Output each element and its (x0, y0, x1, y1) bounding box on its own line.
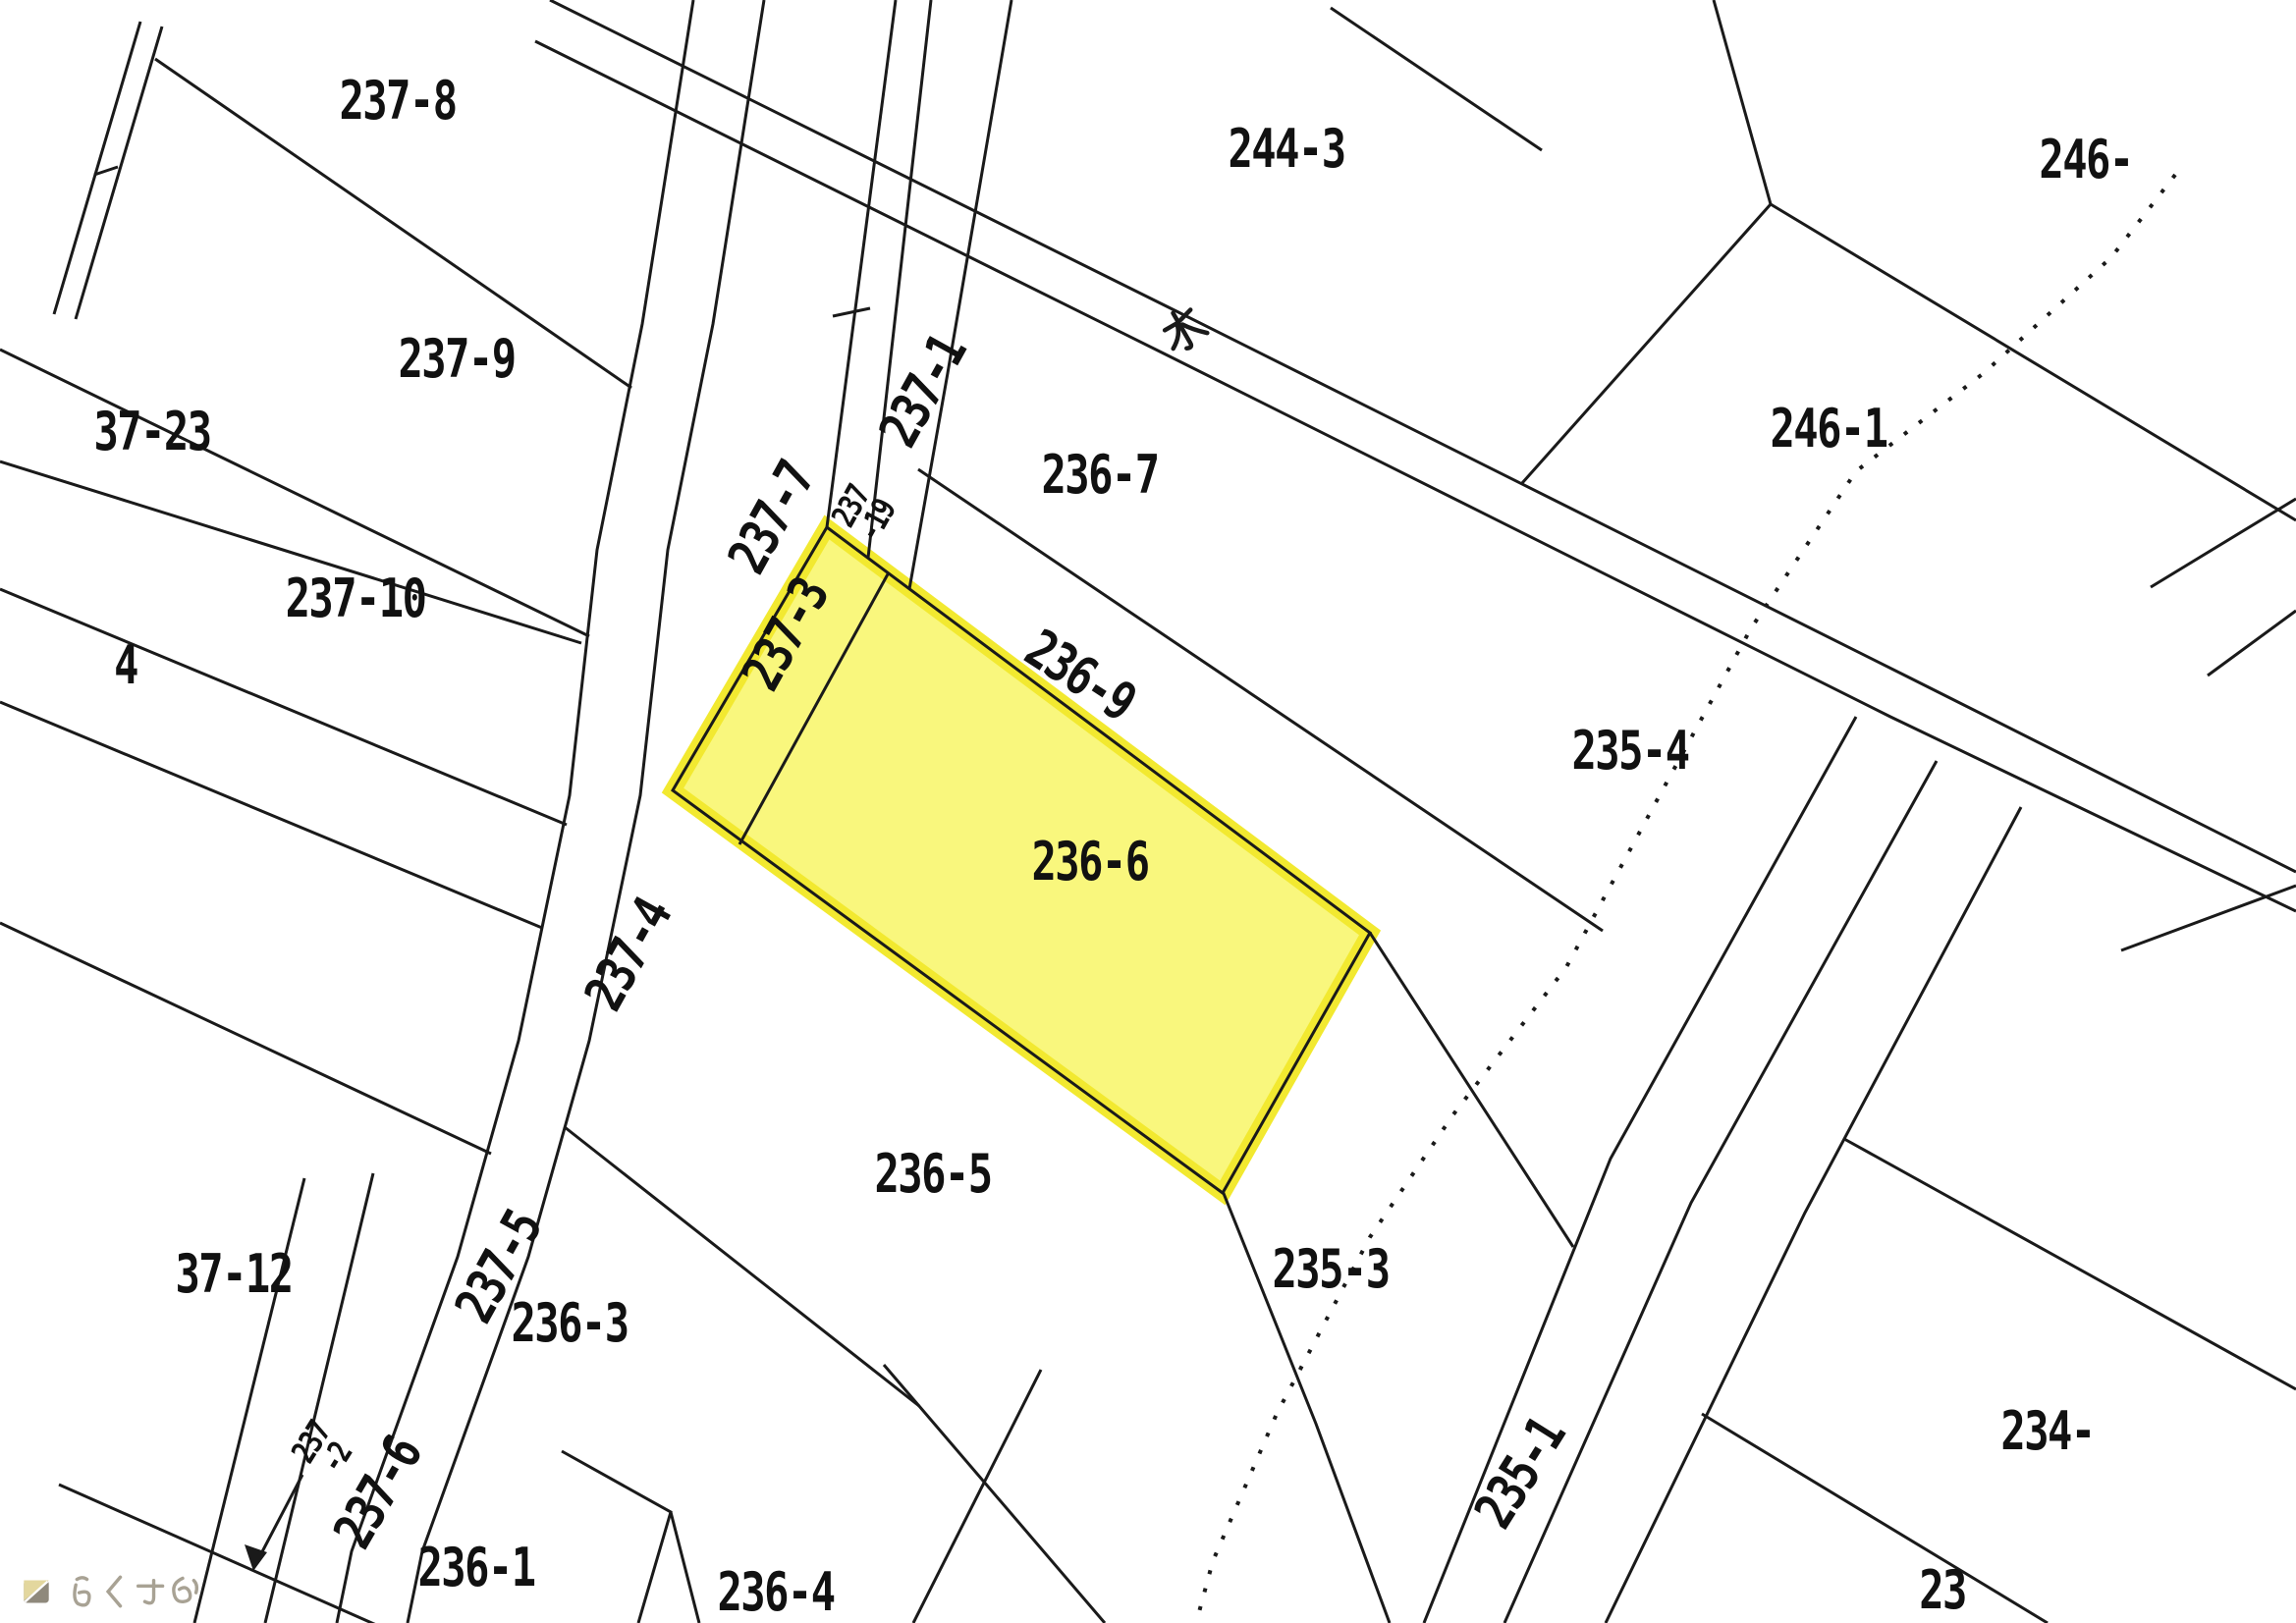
map-line-b-236-1-236-3 (562, 1451, 671, 1623)
map-line-b-234-upper (1844, 1139, 2296, 1389)
map-line-b-246-246-1 (1771, 204, 2296, 520)
map-line-strip-237-19-right (868, 0, 931, 558)
map-line-strip-237-2-right (265, 1173, 373, 1623)
parcel-label-236-6: 236-6 (1032, 838, 1149, 887)
parcel-label-244-3: 244-3 (1229, 125, 1345, 174)
arrow-line-237-2 (257, 1475, 302, 1561)
parcel-label-237-8: 237-8 (340, 77, 457, 126)
parcel-label-235-3: 235-3 (1273, 1245, 1390, 1294)
watermark-glyph-2 (138, 1581, 163, 1603)
cadastral-map-canvas (0, 0, 2296, 1623)
parcel-label-246-: 246- (2039, 135, 2132, 185)
map-line-strip-237-19-left (827, 0, 896, 527)
map-line-spur-east-2 (2208, 611, 2296, 676)
parcel-label-236-3: 236-3 (512, 1299, 629, 1348)
map-line-road-a1 (54, 22, 140, 314)
parcel-label-236-1: 236-1 (418, 1543, 535, 1593)
parcel-label-237-10: 237-10 (286, 574, 426, 623)
parcel-label-246-1: 246-1 (1771, 405, 1887, 454)
watermark-glyph-3 (174, 1578, 197, 1601)
parcel-label-23: 23 (1919, 1566, 1966, 1615)
map-line-b-237-11-12 (0, 923, 491, 1154)
waterway-kanji-water (1158, 303, 1209, 355)
watermark (22, 1575, 206, 1608)
parcel-label-236-4: 236-4 (718, 1568, 835, 1617)
map-line-road2-east (1606, 807, 2021, 1623)
map-line-road2-right (1504, 761, 1937, 1623)
parcel-label-237-9: 237-9 (399, 335, 516, 384)
house-icon (22, 1577, 51, 1606)
map-line-b-237-10 (0, 589, 567, 825)
map-line-tick-237-19 (833, 308, 870, 316)
watermark-glyph-1 (108, 1577, 120, 1605)
map-line-b-235-4-235-3 (1370, 933, 1573, 1247)
cadastral-map: 237-8244-3246-237-937-23246-1236-7237-10… (0, 0, 2296, 1623)
map-line-spur-244-3 (1331, 8, 1542, 150)
map-line-spur-east-3 (2121, 886, 2296, 950)
map-line-b-236-4-x2 (913, 1370, 1041, 1623)
map-line-road-a2 (76, 27, 162, 319)
map-line-b-236-4-x1 (884, 1365, 1105, 1623)
map-line-b-244-3-246 (1714, 0, 1771, 204)
map-line-b-237-11-top (0, 702, 542, 928)
parcel-label-236-7: 236-7 (1042, 451, 1159, 500)
map-line-spur-east-1 (2151, 499, 2296, 587)
map-line-b-234-lower (1702, 1414, 2048, 1623)
map-line-strip-237-1-right (909, 0, 1011, 589)
parcel-label-4: 4 (114, 641, 137, 690)
map-line-b-236-3-236-4 (671, 1512, 699, 1623)
map-line-road1-left (337, 0, 693, 1623)
parcel-label-37-12: 37-12 (176, 1250, 293, 1299)
parcel-label-235-4: 235-4 (1572, 727, 1689, 776)
parcel-label-236-5: 236-5 (875, 1150, 992, 1199)
watermark-text (59, 1575, 206, 1608)
map-line-b-244-3-246-1 (1522, 204, 1771, 483)
watermark-glyph-0 (75, 1578, 89, 1605)
parcel-label-234-: 234- (2000, 1407, 2094, 1456)
map-line-b-236-5-236-3 (565, 1127, 919, 1406)
parcel-label-37-23: 37-23 (94, 407, 211, 457)
